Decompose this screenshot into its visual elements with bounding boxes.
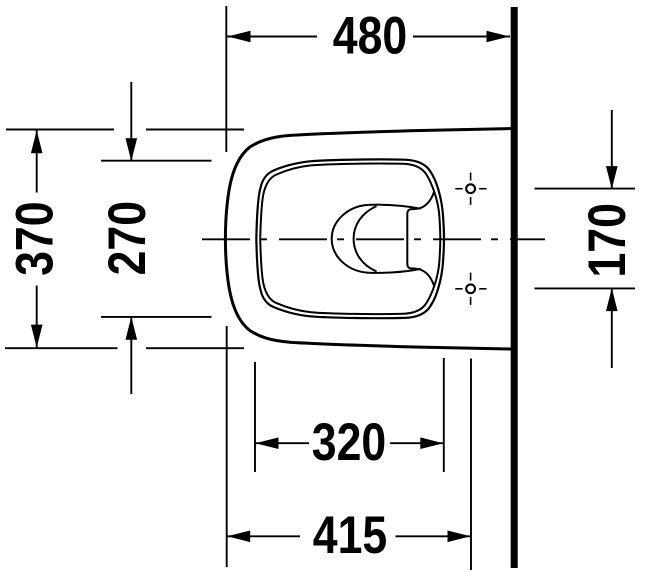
svg-text:370: 370 <box>6 201 64 275</box>
svg-text:480: 480 <box>333 7 407 65</box>
svg-text:170: 170 <box>578 203 636 277</box>
svg-text:270: 270 <box>98 201 156 275</box>
svg-text:415: 415 <box>313 507 387 565</box>
svg-text:320: 320 <box>312 413 386 471</box>
